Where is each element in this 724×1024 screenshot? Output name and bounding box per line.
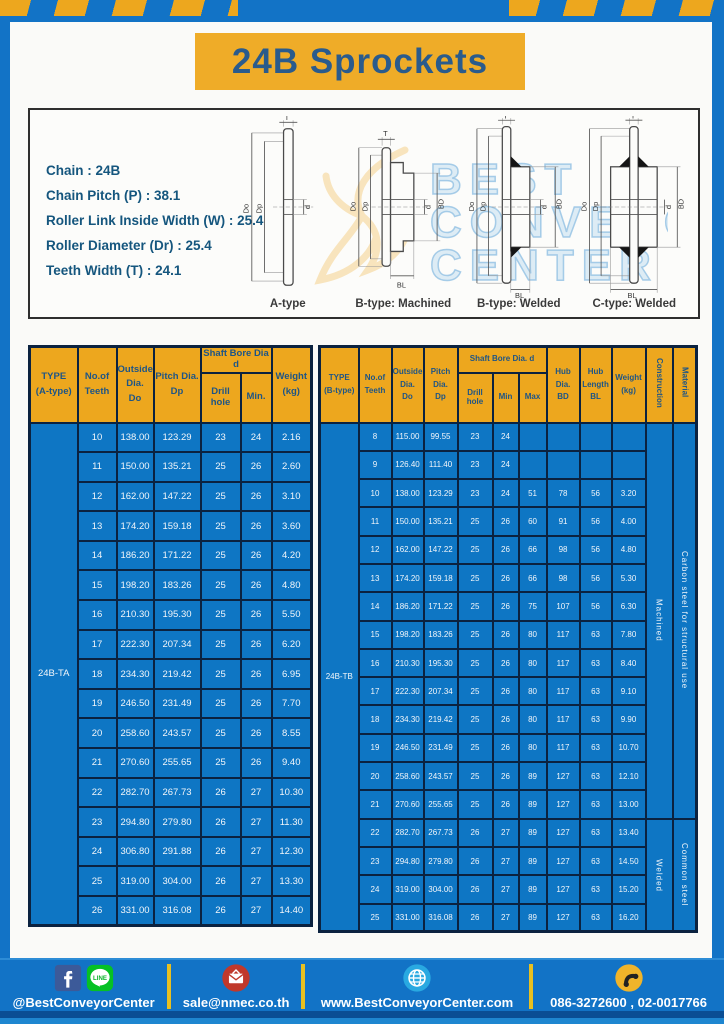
b-type-machined-figure: Do Dp T d bbox=[346, 116, 462, 313]
col-header-pitch: Pitch Dia. Dp bbox=[424, 347, 458, 423]
table-cell: 255.65 bbox=[154, 748, 201, 778]
table-cell: 282.70 bbox=[392, 819, 424, 847]
table-cell: 304.00 bbox=[424, 875, 458, 903]
table-cell: 78 bbox=[547, 479, 580, 507]
table-cell: 5.30 bbox=[612, 564, 646, 592]
table-cell: 279.80 bbox=[424, 847, 458, 875]
table-cell: 306.80 bbox=[117, 837, 154, 867]
table-cell: 26 bbox=[493, 536, 519, 564]
table-cell: 25 bbox=[458, 621, 493, 649]
svg-text:d: d bbox=[664, 205, 673, 209]
type-cell: 24B-TB bbox=[320, 423, 359, 932]
table-cell: 25 bbox=[201, 600, 241, 630]
table-cell: 56 bbox=[580, 536, 612, 564]
table-cell: 123.29 bbox=[154, 423, 201, 453]
table-row: 14186.20171.22252675107566.30 bbox=[320, 592, 697, 620]
table-cell: 89 bbox=[519, 847, 547, 875]
table-cell: 15.20 bbox=[612, 875, 646, 903]
table-cell: 210.30 bbox=[392, 649, 424, 677]
table-row: 19246.50231.492526801176310.70 bbox=[320, 734, 697, 762]
table-cell bbox=[519, 423, 547, 451]
table-cell: 3.10 bbox=[272, 482, 312, 512]
table-cell: 18 bbox=[78, 659, 117, 689]
table-cell: 234.30 bbox=[392, 705, 424, 733]
table-cell: 117 bbox=[547, 734, 580, 762]
table-row: 13174.20159.1825266698565.30 bbox=[320, 564, 697, 592]
table-row: 12162.00147.2225266698564.80 bbox=[320, 536, 697, 564]
table-cell: 123.29 bbox=[424, 479, 458, 507]
table-cell: 159.18 bbox=[154, 511, 201, 541]
table-cell: 25 bbox=[458, 762, 493, 790]
table-cell: 127 bbox=[547, 904, 580, 932]
table-cell: 23 bbox=[201, 423, 241, 453]
table-cell: 6.95 bbox=[272, 659, 312, 689]
table-cell: 331.00 bbox=[392, 904, 424, 932]
table-cell: 8.55 bbox=[272, 718, 312, 748]
table-cell: 89 bbox=[519, 762, 547, 790]
table-cell: 135.21 bbox=[424, 507, 458, 535]
col-header-type: TYPE (A-type) bbox=[30, 347, 78, 423]
table-cell: 27 bbox=[493, 904, 519, 932]
col-header-min: Min bbox=[493, 373, 519, 423]
table-row: 24B-TB8115.0099.552324MachinedCarbon ste… bbox=[320, 423, 697, 451]
table-cell: 26 bbox=[201, 896, 241, 926]
table-cell: 186.20 bbox=[117, 541, 154, 571]
table-cell: 23 bbox=[458, 423, 493, 451]
table-cell: 66 bbox=[519, 536, 547, 564]
table-cell: 24 bbox=[359, 875, 392, 903]
table-cell: 91 bbox=[547, 507, 580, 535]
table-cell: 11.30 bbox=[272, 807, 312, 837]
table-a: TYPE (A-type) No.of Teeth Outside Dia. D… bbox=[28, 345, 310, 927]
svg-text:Dp: Dp bbox=[478, 202, 487, 211]
diagram-panel: BEST CONVEYOR CENTER Chain : 24B Chain P… bbox=[28, 108, 700, 319]
table-cell: 3.60 bbox=[272, 511, 312, 541]
table-cell bbox=[547, 451, 580, 479]
col-header-drill: Drill hole bbox=[458, 373, 493, 423]
table-cell: 186.20 bbox=[392, 592, 424, 620]
svg-text:T: T bbox=[631, 116, 636, 121]
table-cell: 63 bbox=[580, 847, 612, 875]
table-row: 22282.70267.732627891276313.40WeldedComm… bbox=[320, 819, 697, 847]
table-cell: 26 bbox=[201, 778, 241, 808]
c-type-welded-figure: Do Dp T bbox=[577, 116, 693, 313]
table-row: 15198.20183.26252680117637.80 bbox=[320, 621, 697, 649]
table-cell: 56 bbox=[580, 592, 612, 620]
table-cell: 63 bbox=[580, 677, 612, 705]
table-cell: 25 bbox=[458, 536, 493, 564]
col-header-outside: Outside Dia. Do bbox=[117, 347, 154, 423]
top-left-stripes bbox=[0, 0, 238, 16]
table-b: TYPE (B-type) No.of Teeth Outside Dia. D… bbox=[318, 345, 696, 933]
table-cell: 80 bbox=[519, 705, 547, 733]
table-cell: 231.49 bbox=[424, 734, 458, 762]
svg-text:BL: BL bbox=[515, 291, 524, 298]
material-cell: Common steel bbox=[673, 819, 697, 932]
table-cell: 10 bbox=[78, 423, 117, 453]
table-cell: 195.30 bbox=[424, 649, 458, 677]
table-cell: 19 bbox=[78, 689, 117, 719]
table-cell: 3.20 bbox=[612, 479, 646, 507]
footer-bottom-dark-strip bbox=[0, 1011, 724, 1018]
col-header-weight: Weight (kg) bbox=[612, 347, 646, 423]
table-cell: 27 bbox=[493, 819, 519, 847]
table-cell: 9.40 bbox=[272, 748, 312, 778]
table-cell: 63 bbox=[580, 734, 612, 762]
table-cell: 16 bbox=[78, 600, 117, 630]
table-cell: 98 bbox=[547, 536, 580, 564]
col-header-shaft-bore: Shaft Bore Dia. d bbox=[458, 347, 547, 373]
table-cell bbox=[580, 451, 612, 479]
svg-text:T: T bbox=[285, 116, 290, 122]
col-header-type: TYPE (B-type) bbox=[320, 347, 359, 423]
table-cell: 25 bbox=[201, 718, 241, 748]
table-cell: 243.57 bbox=[424, 762, 458, 790]
table-cell: 147.22 bbox=[154, 482, 201, 512]
svg-text:d: d bbox=[539, 205, 548, 209]
a-type-caption: A-type bbox=[270, 298, 306, 313]
footer-social: LINE @BestConveyorCenter bbox=[0, 962, 167, 1011]
table-cell: 127 bbox=[547, 847, 580, 875]
table-cell: 159.18 bbox=[424, 564, 458, 592]
table-cell: 4.80 bbox=[612, 536, 646, 564]
table-cell: 25 bbox=[359, 904, 392, 932]
svg-text:LINE: LINE bbox=[93, 975, 107, 982]
table-cell: 198.20 bbox=[392, 621, 424, 649]
b-type-welded-caption: B-type: Welded bbox=[477, 298, 561, 313]
table-cell: 80 bbox=[519, 621, 547, 649]
table-cell: 107 bbox=[547, 592, 580, 620]
table-cell: 4.00 bbox=[612, 507, 646, 535]
col-header-hub-dia: Hub Dia. BD bbox=[547, 347, 580, 423]
table-cell: 117 bbox=[547, 677, 580, 705]
svg-text:BD: BD bbox=[436, 199, 445, 209]
table-cell: 27 bbox=[241, 807, 272, 837]
table-cell: 80 bbox=[519, 734, 547, 762]
col-header-drill: Drill hole bbox=[201, 373, 241, 423]
svg-text:Dp: Dp bbox=[591, 202, 600, 211]
table-cell: 258.60 bbox=[117, 718, 154, 748]
table-cell: 7.80 bbox=[612, 621, 646, 649]
table-cell: 24 bbox=[493, 451, 519, 479]
table-cell: 22 bbox=[78, 778, 117, 808]
catalog-page: 24B Sprockets BEST CONVEYOR CENTER bbox=[0, 0, 724, 1024]
table-cell: 15 bbox=[359, 621, 392, 649]
footer-bar: LINE @BestConveyorCenter sale@nmec.co.th bbox=[0, 958, 724, 1024]
table-cell: 23 bbox=[78, 807, 117, 837]
table-b-body: 24B-TB8115.0099.552324MachinedCarbon ste… bbox=[320, 423, 697, 932]
table-cell: 25 bbox=[201, 659, 241, 689]
table-cell: 147.22 bbox=[424, 536, 458, 564]
footer-phone-text: 086-3272600 , 02-0017766 bbox=[550, 995, 707, 1010]
table-cell: 75 bbox=[519, 592, 547, 620]
a-type-diagram-icon: Do Dp T d bbox=[237, 116, 339, 298]
table-cell: 25 bbox=[78, 866, 117, 896]
table-cell: 24 bbox=[493, 423, 519, 451]
footer-email-text: sale@nmec.co.th bbox=[183, 995, 290, 1010]
table-cell: 2.60 bbox=[272, 452, 312, 482]
col-header-teeth: No.of Teeth bbox=[359, 347, 392, 423]
table-cell: 115.00 bbox=[392, 423, 424, 451]
table-cell: 26 bbox=[241, 600, 272, 630]
table-cell: 5.50 bbox=[272, 600, 312, 630]
table-cell: 26 bbox=[493, 621, 519, 649]
table-cell: 56 bbox=[580, 479, 612, 507]
table-cell: 8.40 bbox=[612, 649, 646, 677]
table-cell: 135.21 bbox=[154, 452, 201, 482]
table-cell: 25 bbox=[458, 592, 493, 620]
table-cell: 11 bbox=[359, 507, 392, 535]
table-cell: 267.73 bbox=[154, 778, 201, 808]
svg-text:Do: Do bbox=[581, 202, 588, 211]
table-row: 18234.30219.42252680117639.90 bbox=[320, 705, 697, 733]
table-cell: 25 bbox=[201, 452, 241, 482]
table-cell: 117 bbox=[547, 649, 580, 677]
table-cell: 255.65 bbox=[424, 790, 458, 818]
table-cell: 13 bbox=[78, 511, 117, 541]
table-cell: 25 bbox=[458, 564, 493, 592]
table-cell: 18 bbox=[359, 705, 392, 733]
a-type-figure: Do Dp T d A-type bbox=[230, 116, 346, 313]
table-cell: 126.40 bbox=[392, 451, 424, 479]
table-cell: 316.08 bbox=[424, 904, 458, 932]
table-cell: 63 bbox=[580, 621, 612, 649]
table-cell: 127 bbox=[547, 819, 580, 847]
table-cell: 26 bbox=[493, 790, 519, 818]
table-cell: 25 bbox=[201, 482, 241, 512]
footer-website-text: www.BestConveyorCenter.com bbox=[321, 995, 513, 1010]
table-cell: 25 bbox=[458, 677, 493, 705]
table-cell: 26 bbox=[241, 511, 272, 541]
table-cell: 25 bbox=[458, 790, 493, 818]
construction-cell: Welded bbox=[646, 819, 673, 932]
footer-bottom-light-strip bbox=[0, 1018, 724, 1024]
table-cell: 26 bbox=[458, 819, 493, 847]
table-cell: 246.50 bbox=[117, 689, 154, 719]
table-cell: 26 bbox=[493, 762, 519, 790]
table-cell: 14.40 bbox=[272, 896, 312, 926]
table-cell: 89 bbox=[519, 819, 547, 847]
table-cell: 150.00 bbox=[117, 452, 154, 482]
table-cell: 26 bbox=[201, 837, 241, 867]
top-banner bbox=[0, 0, 724, 22]
table-cell: 17 bbox=[359, 677, 392, 705]
table-cell: 171.22 bbox=[154, 541, 201, 571]
table-cell: 174.20 bbox=[117, 511, 154, 541]
table-cell: 10.30 bbox=[272, 778, 312, 808]
table-cell: 66 bbox=[519, 564, 547, 592]
table-cell: 183.26 bbox=[424, 621, 458, 649]
table-cell: 9 bbox=[359, 451, 392, 479]
svg-text:Do: Do bbox=[242, 204, 251, 213]
table-cell: 23 bbox=[458, 479, 493, 507]
b-type-welded-diagram-icon: Do Dp T d bbox=[460, 116, 579, 298]
table-cell: 27 bbox=[241, 778, 272, 808]
table-cell: 162.00 bbox=[117, 482, 154, 512]
c-type-welded-caption: C-type: Welded bbox=[593, 298, 677, 313]
table-row: 16210.30195.30252680117638.40 bbox=[320, 649, 697, 677]
svg-text:d: d bbox=[303, 205, 312, 209]
table-cell: 294.80 bbox=[392, 847, 424, 875]
table-cell: 26 bbox=[241, 659, 272, 689]
table-cell: 16.20 bbox=[612, 904, 646, 932]
table-a-body: 24B-TA10138.00123.2923242.1611150.00135.… bbox=[30, 423, 312, 926]
table-cell: 12.30 bbox=[272, 837, 312, 867]
table-cell: 270.60 bbox=[392, 790, 424, 818]
table-cell: 19 bbox=[359, 734, 392, 762]
table-cell: 4.20 bbox=[272, 541, 312, 571]
table-cell: 51 bbox=[519, 479, 547, 507]
table-cell: 210.30 bbox=[117, 600, 154, 630]
col-header-min: Min. bbox=[241, 373, 272, 423]
table-cell: 13.40 bbox=[612, 819, 646, 847]
table-cell: 294.80 bbox=[117, 807, 154, 837]
table-cell: 26 bbox=[241, 748, 272, 778]
table-cell: 26 bbox=[493, 564, 519, 592]
table-cell: 27 bbox=[241, 866, 272, 896]
footer-website: www.BestConveyorCenter.com bbox=[305, 962, 529, 1011]
table-cell: 258.60 bbox=[392, 762, 424, 790]
table-cell: 27 bbox=[241, 896, 272, 926]
table-row: 23294.80279.802627891276314.50 bbox=[320, 847, 697, 875]
table-cell: 174.20 bbox=[392, 564, 424, 592]
table-cell: 6.30 bbox=[612, 592, 646, 620]
table-cell: 26 bbox=[458, 847, 493, 875]
table-cell: 26 bbox=[493, 677, 519, 705]
table-cell: 26 bbox=[493, 507, 519, 535]
svg-text:T: T bbox=[503, 116, 508, 121]
table-cell: 138.00 bbox=[117, 423, 154, 453]
table-cell: 7.70 bbox=[272, 689, 312, 719]
table-cell: 99.55 bbox=[424, 423, 458, 451]
table-cell: 10.70 bbox=[612, 734, 646, 762]
table-cell: 14 bbox=[78, 541, 117, 571]
table-cell: 9.10 bbox=[612, 677, 646, 705]
table-cell: 56 bbox=[580, 507, 612, 535]
table-cell: 6.20 bbox=[272, 630, 312, 660]
table-row: 25331.00316.082627891276316.20 bbox=[320, 904, 697, 932]
table-cell: 12.10 bbox=[612, 762, 646, 790]
table-cell: 17 bbox=[78, 630, 117, 660]
svg-text:BD: BD bbox=[677, 199, 686, 209]
table-cell: 89 bbox=[519, 875, 547, 903]
table-cell: 12 bbox=[359, 536, 392, 564]
footer-phone: 086-3272600 , 02-0017766 bbox=[533, 962, 724, 1011]
table-cell: 304.00 bbox=[154, 866, 201, 896]
col-header-max: Max bbox=[519, 373, 547, 423]
table-cell: 26 bbox=[458, 875, 493, 903]
svg-text:BL: BL bbox=[397, 280, 406, 289]
table-row: 20258.60243.572526891276312.10 bbox=[320, 762, 697, 790]
table-cell: 219.42 bbox=[154, 659, 201, 689]
table-cell bbox=[612, 423, 646, 451]
table-cell: 26 bbox=[241, 482, 272, 512]
table-cell: 22 bbox=[359, 819, 392, 847]
table-cell: 63 bbox=[580, 705, 612, 733]
col-header-construction: Construction bbox=[646, 347, 673, 423]
sprocket-diagrams: Do Dp T d A-type bbox=[230, 116, 692, 313]
table-cell: 25 bbox=[458, 705, 493, 733]
table-cell: 27 bbox=[493, 875, 519, 903]
table-cell: 231.49 bbox=[154, 689, 201, 719]
svg-text:Do: Do bbox=[466, 202, 475, 211]
footer-social-handle: @BestConveyorCenter bbox=[13, 995, 155, 1010]
table-cell: 25 bbox=[458, 507, 493, 535]
table-cell: 11 bbox=[78, 452, 117, 482]
table-cell: 63 bbox=[580, 649, 612, 677]
table-cell bbox=[580, 423, 612, 451]
table-cell: 207.34 bbox=[424, 677, 458, 705]
table-cell: 56 bbox=[580, 564, 612, 592]
table-cell: 27 bbox=[241, 837, 272, 867]
table-cell: 26 bbox=[241, 689, 272, 719]
table-cell: 279.80 bbox=[154, 807, 201, 837]
table-cell: 23 bbox=[458, 451, 493, 479]
table-cell: 26 bbox=[493, 734, 519, 762]
table-row: 21270.60255.652526891276313.00 bbox=[320, 790, 697, 818]
table-cell: 319.00 bbox=[392, 875, 424, 903]
table-cell: 331.00 bbox=[117, 896, 154, 926]
table-cell: 127 bbox=[547, 875, 580, 903]
table-cell: 80 bbox=[519, 677, 547, 705]
table-cell: 98 bbox=[547, 564, 580, 592]
table-cell: 219.42 bbox=[424, 705, 458, 733]
table-cell: 138.00 bbox=[392, 479, 424, 507]
construction-cell: Machined bbox=[646, 423, 673, 819]
table-cell: 63 bbox=[580, 904, 612, 932]
b-type-machined-caption: B-type: Machined bbox=[355, 298, 451, 313]
c-type-welded-diagram-icon: Do Dp T bbox=[581, 116, 687, 298]
top-right-stripes bbox=[509, 0, 724, 16]
col-header-hub-length: Hub Length BL bbox=[580, 347, 612, 423]
table-cell: 198.20 bbox=[117, 570, 154, 600]
table-cell: 15 bbox=[78, 570, 117, 600]
table-cell bbox=[519, 451, 547, 479]
table-row: 24319.00304.002627891276315.20 bbox=[320, 875, 697, 903]
table-cell: 207.34 bbox=[154, 630, 201, 660]
svg-text:Dp: Dp bbox=[254, 204, 263, 213]
table-row: 11150.00135.2125266091564.00 bbox=[320, 507, 697, 535]
table-cell: 8 bbox=[359, 423, 392, 451]
table-cell: 26 bbox=[493, 705, 519, 733]
table-row: 17222.30207.34252680117639.10 bbox=[320, 677, 697, 705]
table-cell: 234.30 bbox=[117, 659, 154, 689]
table-cell: 25 bbox=[201, 630, 241, 660]
table-cell: 162.00 bbox=[392, 536, 424, 564]
table-cell: 243.57 bbox=[154, 718, 201, 748]
table-cell: 14 bbox=[359, 592, 392, 620]
table-cell: 24 bbox=[241, 423, 272, 453]
table-cell: 27 bbox=[493, 847, 519, 875]
b-type-welded-figure: Do Dp T d bbox=[461, 116, 577, 313]
svg-text:d: d bbox=[424, 205, 433, 209]
page-title: 24B Sprockets bbox=[232, 42, 488, 82]
line-icon: LINE bbox=[86, 964, 114, 992]
table-cell: 25 bbox=[201, 689, 241, 719]
table-cell bbox=[547, 423, 580, 451]
table-cell: 26 bbox=[241, 630, 272, 660]
table-cell: 282.70 bbox=[117, 778, 154, 808]
table-cell: 26 bbox=[241, 570, 272, 600]
table-cell: 25 bbox=[458, 649, 493, 677]
col-header-pitch: Pitch Dia. Dp bbox=[154, 347, 201, 423]
table-cell: 13.30 bbox=[272, 866, 312, 896]
table-cell: 117 bbox=[547, 621, 580, 649]
table-cell: 63 bbox=[580, 819, 612, 847]
table-cell: 26 bbox=[78, 896, 117, 926]
phone-icon bbox=[614, 963, 644, 993]
table-cell: 80 bbox=[519, 649, 547, 677]
